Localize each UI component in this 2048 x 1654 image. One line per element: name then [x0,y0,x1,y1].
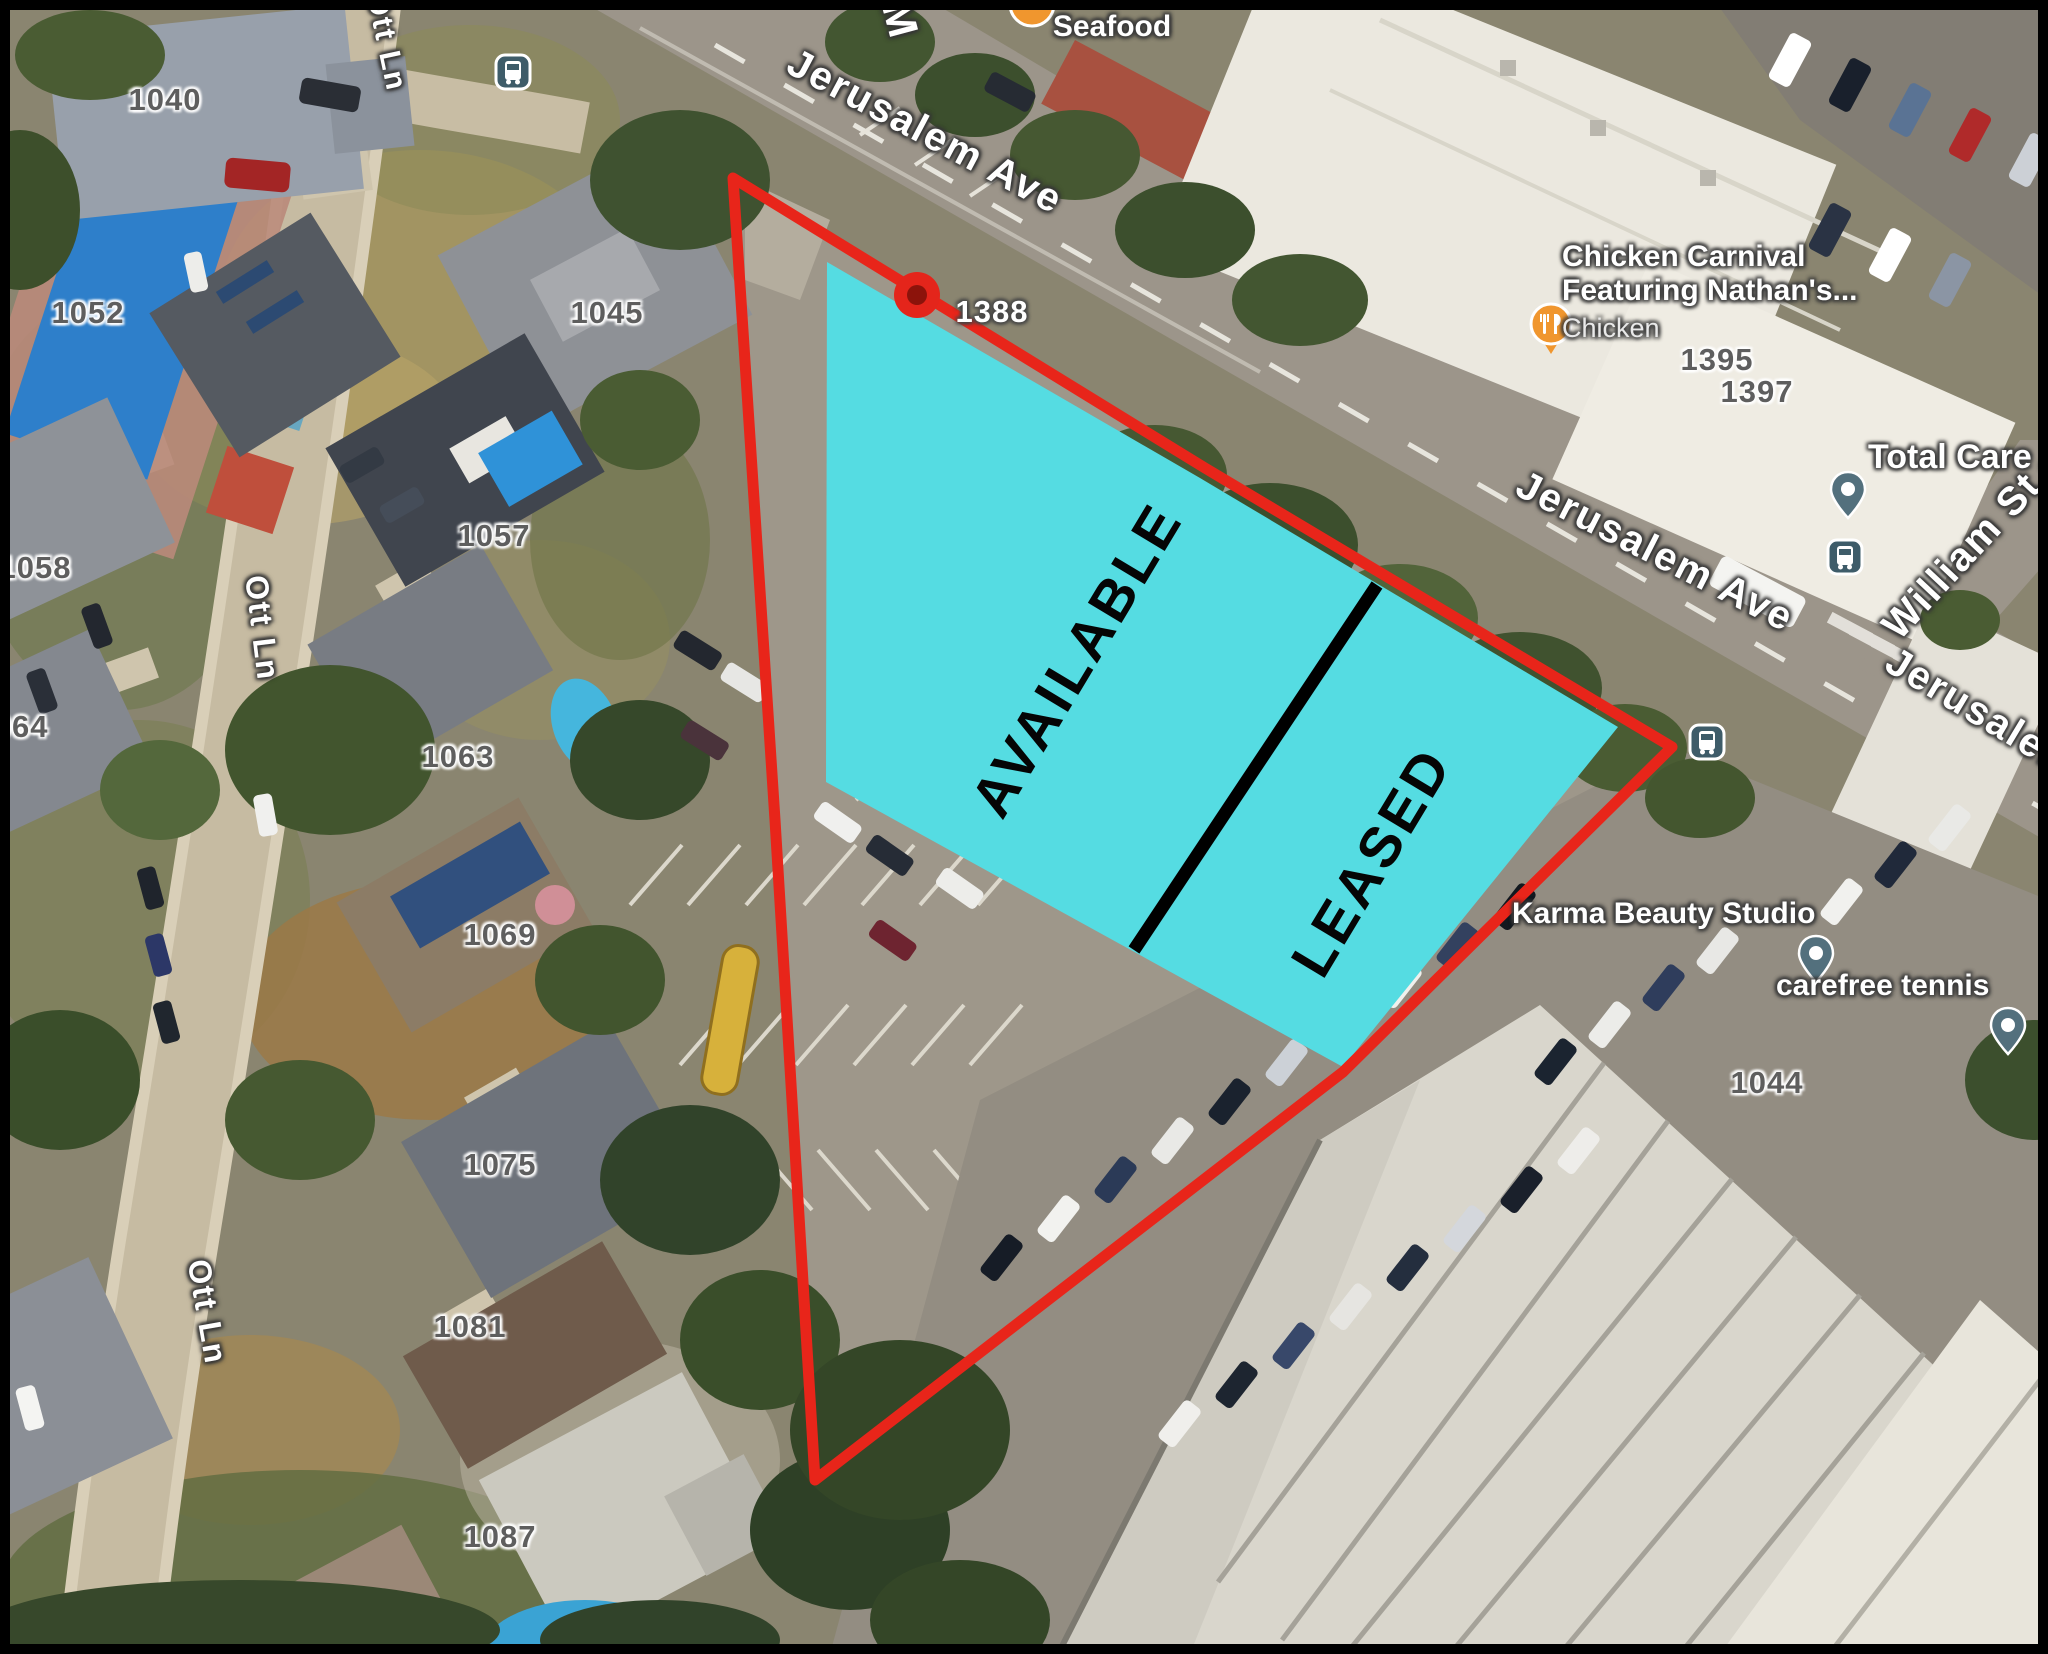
marker-address-label: 1388 [956,294,1029,330]
poi-label-seafood[interactable]: Seafood [1053,10,1171,44]
address-label-1057: 1057 [458,518,531,554]
address-label-1058: 1058 [0,550,71,586]
poi-chicken-carnival-category: Chicken [1562,311,1858,345]
address-label-1397: 1397 [1721,374,1794,410]
highlight-polygon [826,262,1618,1067]
address-label-1069: 1069 [464,917,537,953]
address-label-1044: 1044 [1731,1065,1804,1101]
poi-label-karma-beauty[interactable]: Karma Beauty Studio [1512,897,1815,931]
address-label-1087: 1087 [464,1519,537,1555]
address-label-1081: 1081 [434,1309,507,1345]
poi-chicken-carnival-line2: Featuring Nathan's... [1562,274,1858,308]
seafood-pin-icon[interactable] [1010,0,1054,26]
address-label-1395: 1395 [1681,342,1754,378]
poi-chicken-carnival[interactable]: Chicken Carnival Featuring Nathan's... C… [1562,240,1858,345]
poi-label-carefree-tennis[interactable]: carefree tennis [1776,969,1989,1003]
address-label-1064: 1064 [0,709,48,745]
address-label-1063: 1063 [422,739,495,775]
address-marker-dot-center [907,285,927,305]
address-label-1040: 1040 [129,82,202,118]
satellite-map: Jerusalem Ave Jerusalem Ave Jerusalem Av… [0,0,2048,1654]
poi-label-total-care[interactable]: Total Care Ad [1868,438,2048,477]
address-label-1075: 1075 [464,1147,537,1183]
poi-chicken-carnival-line1: Chicken Carnival [1562,240,1858,274]
address-label-1045: 1045 [571,295,644,331]
address-label-1052: 1052 [52,295,125,331]
